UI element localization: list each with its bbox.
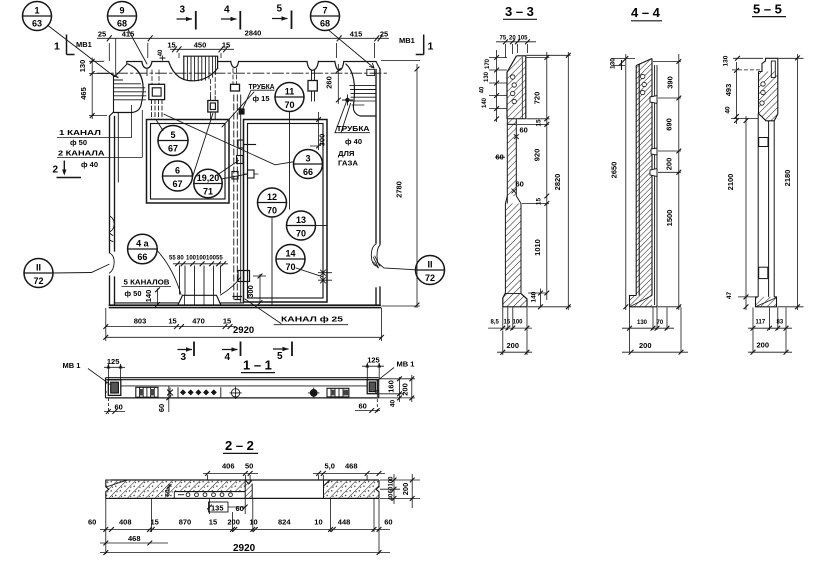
svg-text:15: 15 [504, 320, 511, 326]
svg-text:66: 66 [303, 167, 313, 177]
svg-text:60: 60 [496, 153, 504, 162]
svg-text:4: 4 [225, 352, 231, 363]
svg-text:5 – 5: 5 – 5 [753, 2, 782, 17]
svg-text:50: 50 [245, 462, 253, 471]
svg-text:11: 11 [285, 87, 295, 97]
svg-text:55: 55 [216, 256, 223, 262]
svg-text:67: 67 [172, 179, 182, 189]
svg-text:468: 468 [345, 462, 358, 471]
svg-text:125: 125 [107, 357, 120, 366]
svg-text:70: 70 [285, 262, 295, 272]
svg-text:70: 70 [657, 320, 664, 326]
svg-text:130: 130 [723, 55, 730, 66]
svg-text:870: 870 [179, 518, 192, 527]
svg-text:14: 14 [285, 249, 295, 259]
svg-text:60: 60 [516, 180, 524, 189]
svg-text:ф 15: ф 15 [253, 94, 270, 103]
svg-text:II: II [427, 260, 432, 270]
svg-text:66: 66 [137, 252, 147, 262]
svg-text:15: 15 [151, 518, 159, 527]
svg-text:300: 300 [246, 285, 255, 298]
svg-text:60: 60 [236, 504, 244, 513]
svg-text:2780: 2780 [395, 181, 404, 198]
svg-text:690: 690 [665, 118, 674, 131]
svg-text:70: 70 [284, 100, 294, 110]
svg-text:5,0: 5,0 [325, 462, 335, 471]
svg-text:2920: 2920 [233, 543, 256, 554]
svg-text:40: 40 [390, 400, 397, 408]
svg-text:40: 40 [480, 86, 486, 93]
svg-text:2: 2 [53, 165, 59, 176]
svg-text:ф 50: ф 50 [125, 289, 142, 298]
svg-text:200: 200 [757, 341, 770, 350]
svg-text:4 a: 4 a [136, 239, 150, 249]
svg-text:2 КАНАЛА: 2 КАНАЛА [58, 149, 105, 158]
svg-text:15: 15 [209, 518, 217, 527]
svg-text:408: 408 [119, 518, 132, 527]
svg-text:МВ 1: МВ 1 [63, 361, 81, 370]
svg-text:60: 60 [520, 126, 528, 135]
svg-text:1: 1 [54, 41, 60, 53]
svg-text:105: 105 [518, 36, 529, 42]
svg-text:6: 6 [175, 166, 180, 176]
svg-text:1: 1 [34, 6, 39, 16]
svg-text:ГАЗА: ГАЗА [338, 159, 359, 168]
svg-text:465: 465 [79, 87, 88, 100]
svg-text:13: 13 [296, 215, 306, 225]
svg-text:60: 60 [384, 518, 392, 527]
svg-text:170: 170 [485, 58, 491, 69]
svg-text:19,20: 19,20 [197, 173, 220, 183]
svg-text:II: II [36, 263, 41, 273]
svg-text:63: 63 [32, 19, 42, 29]
svg-text:40: 40 [389, 493, 395, 500]
svg-text:40: 40 [158, 49, 164, 56]
svg-text:15: 15 [223, 317, 231, 326]
svg-text:25: 25 [380, 30, 388, 39]
svg-text:3: 3 [180, 5, 186, 16]
svg-text:1 КАНАЛ: 1 КАНАЛ [59, 128, 101, 137]
svg-text:55: 55 [169, 256, 176, 262]
svg-text:1500: 1500 [665, 210, 674, 227]
svg-text:ТРУБКА: ТРУБКА [337, 124, 371, 133]
svg-text:60: 60 [88, 518, 96, 527]
svg-text:390: 390 [666, 76, 675, 89]
svg-text:2 – 2: 2 – 2 [225, 438, 254, 453]
svg-text:824: 824 [278, 518, 291, 527]
svg-text:117: 117 [756, 320, 766, 326]
svg-text:140: 140 [482, 97, 488, 108]
svg-text:300: 300 [318, 134, 327, 147]
svg-text:415: 415 [350, 30, 363, 39]
svg-text:2840: 2840 [245, 29, 262, 38]
svg-text:493: 493 [724, 84, 733, 97]
svg-text:140: 140 [531, 291, 538, 302]
svg-text:5 КАНАЛОВ: 5 КАНАЛОВ [124, 278, 171, 287]
svg-text:200: 200 [507, 341, 520, 350]
svg-text:МВ 1: МВ 1 [397, 360, 415, 369]
svg-text:15: 15 [536, 119, 543, 127]
svg-text:ф 40: ф 40 [345, 137, 362, 146]
svg-text:КАНАЛ ф 25: КАНАЛ ф 25 [281, 315, 343, 324]
svg-text:5: 5 [277, 351, 283, 362]
svg-text:72: 72 [33, 276, 43, 286]
svg-text:10: 10 [249, 518, 257, 527]
svg-text:15: 15 [168, 317, 176, 326]
svg-text:130: 130 [78, 60, 87, 73]
svg-text:70: 70 [296, 229, 306, 239]
svg-text:200: 200 [639, 341, 652, 350]
svg-text:1010: 1010 [533, 239, 542, 256]
svg-text:200: 200 [665, 158, 674, 171]
svg-text:450: 450 [194, 41, 207, 50]
svg-text:468: 468 [128, 534, 141, 543]
svg-text:3: 3 [181, 352, 187, 363]
svg-text:60: 60 [389, 486, 395, 493]
svg-text:60: 60 [115, 403, 123, 412]
svg-text:2920: 2920 [233, 325, 254, 336]
svg-text:803: 803 [134, 317, 147, 326]
svg-text:5: 5 [170, 130, 175, 140]
svg-text:200: 200 [227, 518, 240, 527]
svg-text:60: 60 [157, 404, 166, 412]
svg-text:60: 60 [359, 402, 367, 411]
svg-text:100: 100 [389, 476, 395, 487]
svg-text:3 – 3: 3 – 3 [505, 4, 534, 19]
svg-text:920: 920 [533, 149, 542, 162]
svg-text:67: 67 [168, 144, 178, 154]
svg-text:2820: 2820 [553, 174, 562, 191]
svg-text:ф 50: ф 50 [70, 138, 87, 147]
svg-text:ДЛЯ: ДЛЯ [338, 149, 355, 158]
svg-text:25: 25 [98, 30, 106, 39]
svg-text:100: 100 [513, 320, 524, 326]
svg-text:470: 470 [192, 317, 205, 326]
svg-text:68: 68 [320, 19, 330, 29]
svg-text:160: 160 [387, 380, 396, 393]
svg-text:80: 80 [177, 256, 184, 262]
svg-text:60: 60 [165, 489, 172, 497]
svg-text:2650: 2650 [610, 162, 619, 179]
svg-text:1 – 1: 1 – 1 [243, 358, 272, 373]
svg-text:12: 12 [267, 192, 277, 202]
svg-text:130: 130 [484, 71, 490, 82]
svg-text:406: 406 [222, 462, 235, 471]
svg-text:4 – 4: 4 – 4 [631, 5, 661, 20]
svg-text:ф 40: ф 40 [81, 160, 98, 169]
svg-text:МВ1: МВ1 [399, 36, 415, 45]
svg-text:10: 10 [314, 518, 322, 527]
svg-text:15: 15 [536, 198, 543, 206]
svg-text:1: 1 [428, 41, 434, 53]
svg-text:130: 130 [637, 320, 648, 326]
svg-text:ТРУБКА: ТРУБКА [249, 82, 276, 91]
svg-text:83: 83 [777, 320, 784, 326]
svg-text:15: 15 [222, 41, 230, 50]
svg-text:7: 7 [322, 6, 327, 16]
svg-text:140: 140 [144, 290, 153, 303]
svg-text:3: 3 [305, 154, 310, 164]
svg-text:71: 71 [203, 187, 213, 197]
svg-text:2100: 2100 [726, 174, 735, 191]
svg-text:15: 15 [167, 41, 175, 50]
svg-text:47: 47 [726, 292, 733, 300]
svg-text:260: 260 [325, 76, 334, 89]
svg-text:415: 415 [122, 30, 135, 39]
svg-text:75: 75 [500, 36, 507, 42]
svg-text:70: 70 [267, 206, 277, 216]
svg-text:4: 4 [224, 5, 230, 16]
svg-text:200: 200 [401, 383, 410, 396]
svg-text:125: 125 [367, 356, 380, 365]
svg-text:68: 68 [117, 19, 127, 29]
svg-text:9: 9 [119, 6, 124, 16]
svg-text:5: 5 [277, 4, 283, 15]
svg-text:2180: 2180 [783, 170, 792, 187]
svg-text:72: 72 [425, 273, 435, 283]
svg-text:40: 40 [725, 106, 732, 114]
svg-text:135: 135 [211, 504, 224, 513]
svg-text:130: 130 [610, 58, 617, 69]
svg-text:448: 448 [338, 518, 351, 527]
svg-text:720: 720 [533, 92, 542, 105]
svg-text:8,5: 8,5 [491, 320, 500, 326]
svg-text:МВ1: МВ1 [76, 40, 92, 49]
svg-text:200: 200 [401, 483, 410, 496]
svg-text:20: 20 [509, 36, 516, 42]
